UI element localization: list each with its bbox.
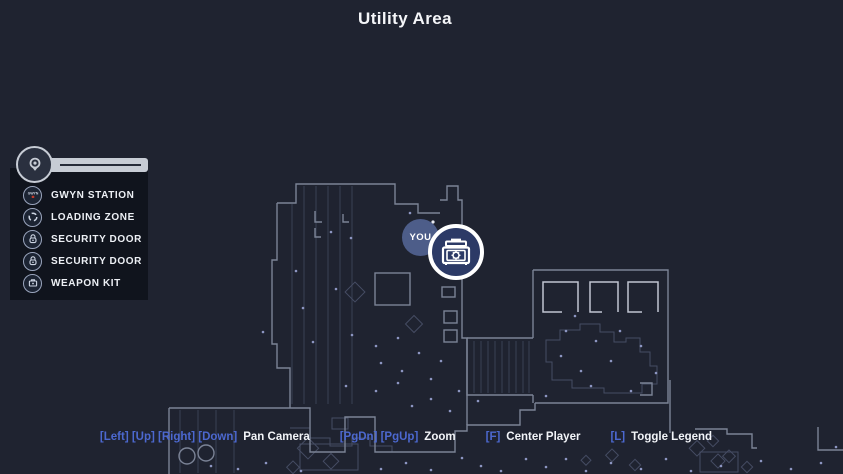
legend-item-label: SECURITY DOOR <box>51 256 142 267</box>
key-hint: [Left] [Up] [Right] [Down] <box>100 431 237 443</box>
control-toggle-legend: [L]Toggle Legend <box>610 431 712 443</box>
control-zoom: [PgDn] [PgUp]Zoom <box>340 431 456 443</box>
loading-zone-icon <box>23 208 42 227</box>
legend-bar-line <box>60 164 141 166</box>
legend-header-bar <box>44 158 148 172</box>
map-pin-icon <box>16 146 53 183</box>
legend-panel: GWYN GWYN STATION LOADING ZONE <box>10 168 148 300</box>
legend-item-security-door-2: SECURITY DOOR <box>23 250 148 272</box>
legend-item-label: SECURITY DOOR <box>51 234 142 245</box>
legend-item-security-door-1: SECURITY DOOR <box>23 228 148 250</box>
legend-item-gwyn-station: GWYN GWYN STATION <box>23 184 148 206</box>
control-center-player: [F]Center Player <box>486 431 581 443</box>
legend-item-loading-zone: LOADING ZONE <box>23 206 148 228</box>
legend-item-weapon-kit: WEAPON KIT <box>23 272 148 294</box>
svg-text:GWYN: GWYN <box>27 192 38 196</box>
control-action-label: Zoom <box>424 431 455 443</box>
legend-item-label: WEAPON KIT <box>51 278 121 289</box>
key-hint: [L] <box>610 431 625 443</box>
control-action-label: Center Player <box>506 431 580 443</box>
weapon-kit-marker[interactable] <box>428 224 484 280</box>
controls-bar: [Left] [Up] [Right] [Down]Pan Camera [Pg… <box>0 431 812 443</box>
key-hint: [PgDn] [PgUp] <box>340 431 419 443</box>
weapon-kit-icon <box>440 237 472 267</box>
security-door-icon <box>23 252 42 271</box>
player-marker-label: YOU <box>409 232 431 243</box>
weapon-kit-icon <box>23 274 42 293</box>
gwyn-station-icon: GWYN <box>23 186 42 205</box>
control-action-label: Pan Camera <box>243 431 309 443</box>
control-action-label: Toggle Legend <box>631 431 712 443</box>
map-screen: Utility Area GWYN GWYN STATION <box>0 0 843 474</box>
security-door-icon <box>23 230 42 249</box>
control-pan-camera: [Left] [Up] [Right] [Down]Pan Camera <box>100 431 310 443</box>
page-title: Utility Area <box>0 9 810 29</box>
key-hint: [F] <box>486 431 501 443</box>
legend-item-label: LOADING ZONE <box>51 212 135 223</box>
legend-item-label: GWYN STATION <box>51 190 135 201</box>
